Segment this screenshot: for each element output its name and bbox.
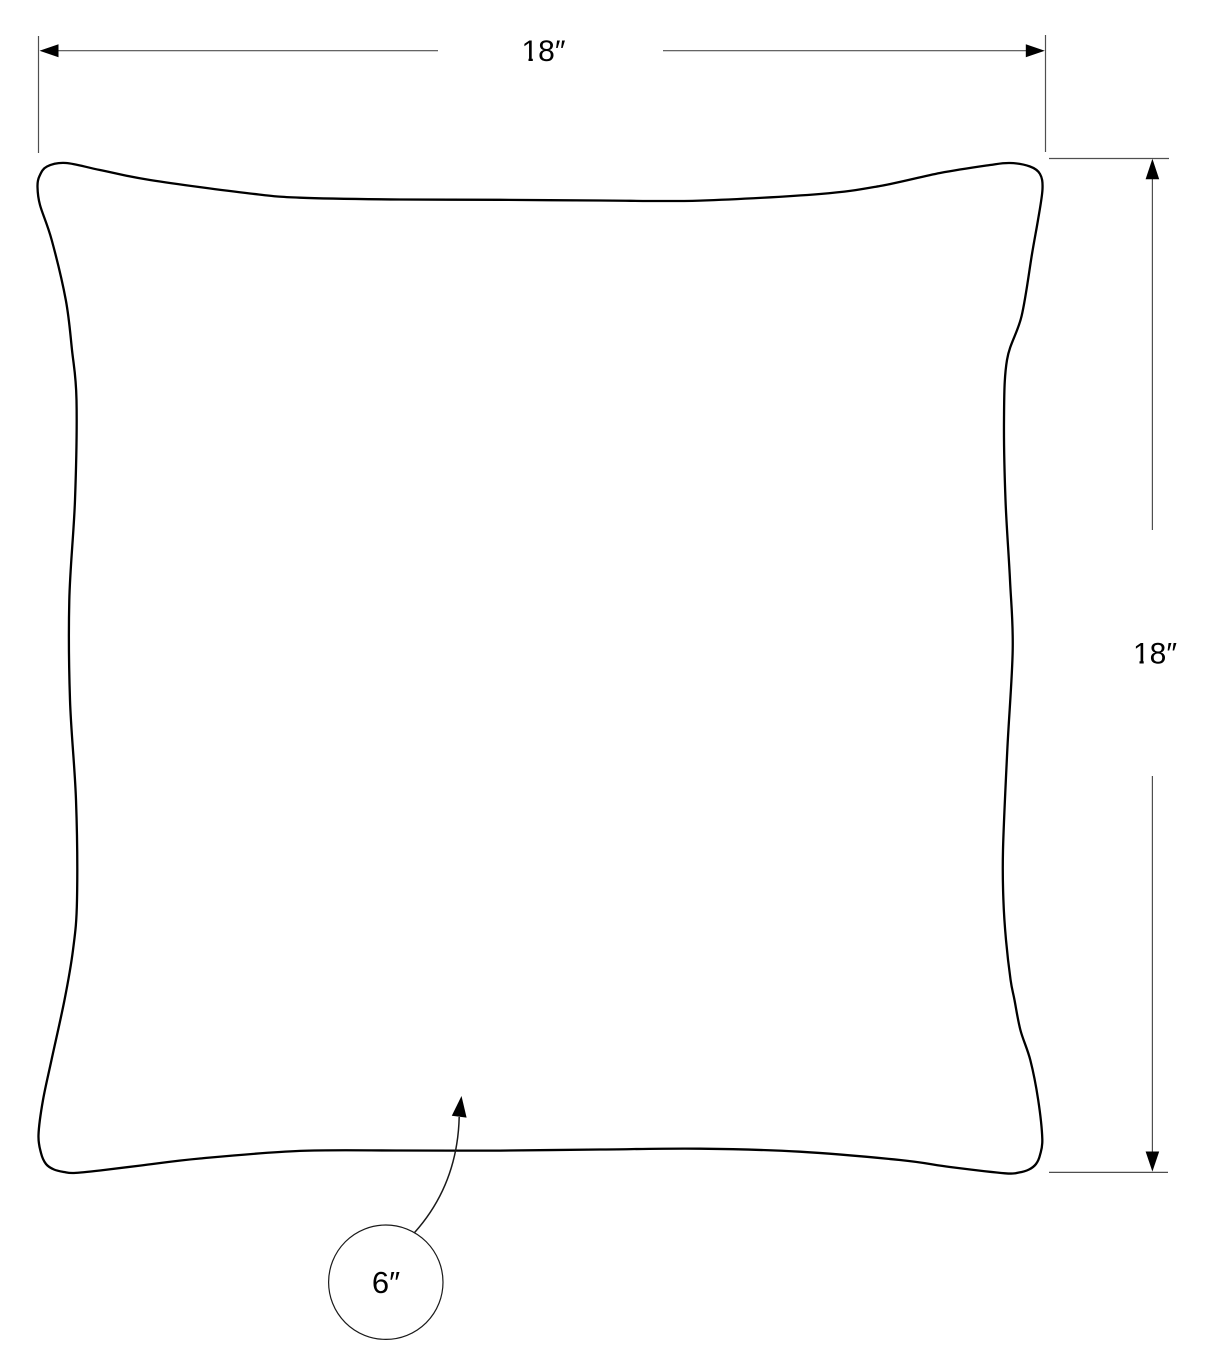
svg-text:18″: 18″ [522,35,566,68]
svg-text:6″: 6″ [372,1265,400,1300]
svg-text:18″: 18″ [1133,638,1177,671]
